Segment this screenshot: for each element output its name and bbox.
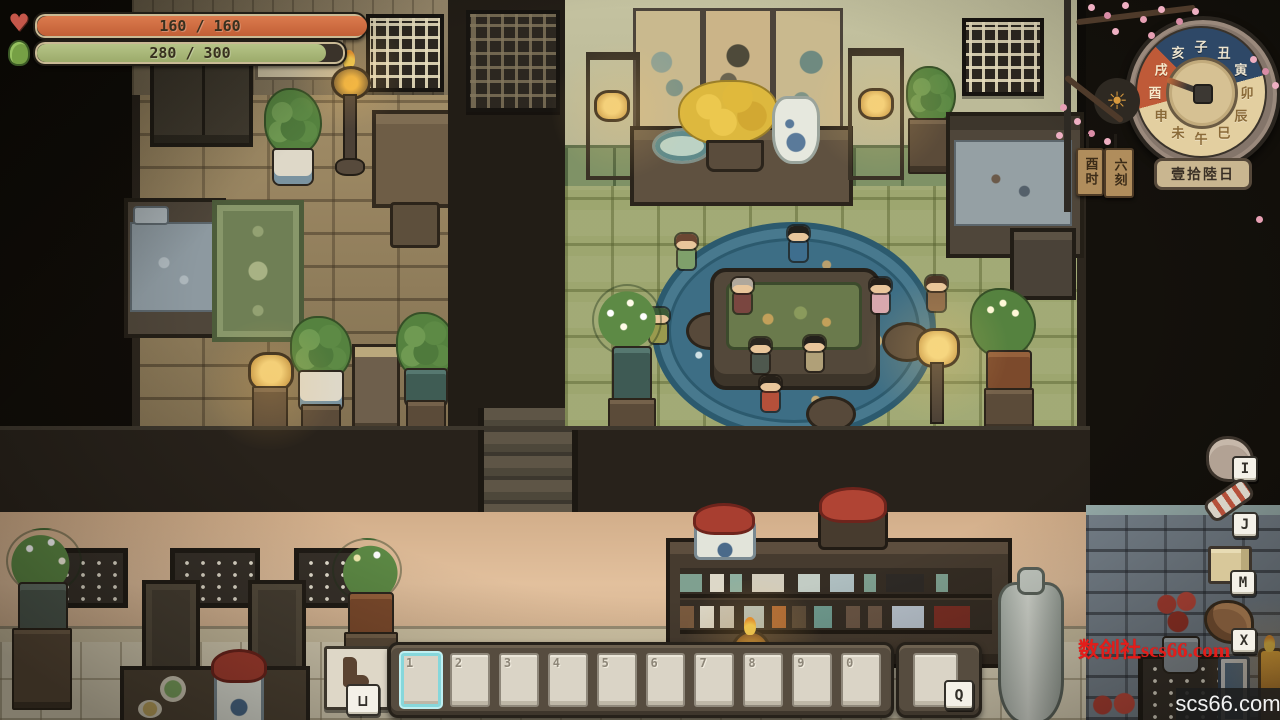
- game-screen: ♥ 160 / 160 280 / 300 子丑寅卯辰巳午未申酉戌亥 ☀: [0, 0, 1280, 720]
- quarter-tag: 六刻: [1104, 148, 1134, 198]
- stamina-bar-value: 280 / 300: [35, 42, 345, 64]
- mount-key-label: X: [1240, 633, 1248, 649]
- clock-body: 子丑寅卯辰巳午未申酉戌亥: [1125, 16, 1280, 172]
- red-covered-jar: [818, 508, 888, 550]
- red-cloth-cover: [819, 487, 887, 523]
- flowering-plant: [970, 288, 1036, 358]
- hotbar-slot-key-label: 1: [406, 656, 413, 670]
- watermark-red: 数创社scs66.com: [1078, 634, 1230, 664]
- floor-lantern-pole: [930, 362, 944, 424]
- hotbar-slot-key-label: 3: [504, 656, 511, 670]
- map-key-label: M: [1239, 575, 1247, 591]
- autorun-key[interactable]: ⊔: [346, 684, 380, 716]
- zodiac-hour-12: 亥: [1171, 43, 1184, 62]
- hotbar-slot-key-label: 8: [748, 656, 755, 670]
- red-cloth-cover: [693, 503, 755, 535]
- zodiac-hour-10: 酉: [1148, 83, 1161, 102]
- npc-woman-pink: [872, 292, 889, 313]
- hotbar-slot-key-label: 0: [846, 656, 853, 670]
- red-flowers: [1084, 690, 1146, 720]
- vase-neck: [1017, 567, 1045, 595]
- npc-sitting-back: [752, 352, 769, 373]
- stamina-bar: 280 / 300: [33, 40, 347, 66]
- incense-stand: [352, 344, 400, 438]
- covered-jar: [214, 668, 264, 720]
- stamina-icon: [10, 42, 28, 64]
- hotbar-slot-9[interactable]: 9: [792, 653, 832, 707]
- main-room-window: [962, 18, 1044, 96]
- hotbar-slots: 1234567890: [401, 653, 881, 707]
- left-bed-blanket: [130, 222, 214, 312]
- lantern: [594, 90, 630, 122]
- hotbar-slot-key-label: 5: [602, 656, 609, 670]
- plate-food: [138, 700, 162, 718]
- corridor-door: [466, 10, 560, 112]
- hotbar-slot-4[interactable]: 4: [548, 653, 588, 707]
- zodiac-hour-6: 巳: [1217, 122, 1230, 141]
- hotbar-slot-key-label: 9: [797, 656, 804, 670]
- bonsai-pot: [706, 140, 764, 172]
- heart-icon: ♥: [6, 10, 32, 36]
- stool: [390, 202, 440, 248]
- autorun-key-label: ⊔: [358, 691, 368, 710]
- watermark-corner: scs66.com: [1176, 688, 1280, 720]
- clock-widget: 子丑寅卯辰巳午未申酉戌亥 ☀ 酉时 六刻 壹拾陸日: [1050, 0, 1280, 230]
- porcelain-vase: [772, 96, 820, 164]
- inventory-key[interactable]: I: [1232, 456, 1258, 482]
- hotbar-slot-6[interactable]: 6: [646, 653, 686, 707]
- npc-walking-girl: [678, 248, 695, 269]
- health-bar: 160 / 160: [33, 12, 367, 40]
- hotbar-slot-3[interactable]: 3: [499, 653, 539, 707]
- candle-lamp-base: [335, 158, 365, 176]
- watermark-corner-label: scs66.com: [1175, 691, 1280, 717]
- hotbar-slot-key-label: 4: [553, 656, 560, 670]
- zodiac-hour-9: 申: [1155, 106, 1168, 125]
- zodiac-hour-1: 子: [1194, 37, 1207, 56]
- zodiac-hour-7: 午: [1194, 129, 1207, 148]
- green-rug: [212, 200, 304, 342]
- hotbar-slot-key-label: 2: [455, 656, 462, 670]
- clock-dial: 子丑寅卯辰巳午未申酉戌亥: [1135, 26, 1267, 158]
- bamboo-pot: [272, 148, 314, 186]
- npc-red-shirt: [762, 390, 779, 411]
- hotbar-slot-2[interactable]: 2: [450, 653, 490, 707]
- red-cloth-cover: [211, 649, 267, 683]
- zodiac-hour-8: 未: [1171, 122, 1184, 141]
- npc-grandma: [734, 292, 751, 313]
- journal-key-label: J: [1241, 517, 1249, 533]
- hotbar-slot-7[interactable]: 7: [694, 653, 734, 707]
- health-bar-value: 160 / 160: [35, 14, 365, 38]
- lantern: [858, 88, 894, 120]
- zodiac-hour-5: 辰: [1234, 106, 1247, 125]
- candle-flame: [744, 617, 756, 635]
- date-plaque: 壹拾陸日: [1154, 158, 1252, 190]
- red-covered-jar: [694, 520, 756, 560]
- clock-hub: [1193, 84, 1213, 104]
- journal-key[interactable]: J: [1232, 512, 1258, 538]
- health-bar-group: ♥ 160 / 160 280 / 300: [6, 10, 376, 66]
- npc-man-beige: [806, 350, 823, 371]
- time-tag: 酉时: [1076, 148, 1104, 196]
- quarter-tag-label: 六刻: [1110, 158, 1129, 188]
- hotbar-slot-5[interactable]: 5: [597, 653, 637, 707]
- orchid-vase: [612, 346, 652, 406]
- hotbar-slot-key-label: 6: [651, 656, 658, 670]
- orchid-stand: [12, 628, 72, 710]
- cherry-blossoms: [1088, 4, 1095, 11]
- hotbar-slot-0[interactable]: 0: [841, 653, 881, 707]
- zodiac-hour-3: 寅: [1234, 60, 1247, 79]
- dish-shelf-row: [680, 600, 992, 634]
- hotbar-slot-key-label: 7: [699, 656, 706, 670]
- quick-use-key[interactable]: Q: [944, 680, 974, 710]
- bed-chest: [1010, 228, 1076, 300]
- zodiac-hour-4: 卯: [1240, 83, 1253, 102]
- npc-woman-brown: [928, 290, 945, 311]
- hotbar: 1234567890: [388, 642, 894, 718]
- bamboo-plant: [264, 88, 322, 156]
- large-vase: [998, 582, 1064, 720]
- inventory-key-label: I: [1241, 461, 1249, 477]
- time-tag-label: 酉时: [1081, 157, 1100, 187]
- zodiac-hour-2: 丑: [1217, 43, 1230, 62]
- shortcut-panel: I J M X: [1200, 436, 1270, 666]
- cherry-blossoms: [1250, 56, 1257, 63]
- zodiac-hour-11: 戌: [1155, 60, 1168, 79]
- map-key[interactable]: M: [1230, 570, 1256, 596]
- hotbar-slot-8[interactable]: 8: [743, 653, 783, 707]
- date-plaque-label: 壹拾陸日: [1171, 164, 1235, 184]
- dish-shelf-row: [680, 568, 992, 598]
- hotbar-slot-1[interactable]: 1: [401, 653, 441, 707]
- plate-greens: [160, 676, 186, 702]
- left-bed-pillow: [133, 206, 169, 225]
- npc-man-blue: [790, 240, 807, 261]
- left-room-window: [366, 14, 444, 92]
- cherry-blossoms: [1060, 104, 1067, 111]
- candle-lamp-pole: [343, 94, 357, 164]
- quick-use-key-label: Q: [954, 686, 963, 704]
- mount-key[interactable]: X: [1231, 628, 1257, 654]
